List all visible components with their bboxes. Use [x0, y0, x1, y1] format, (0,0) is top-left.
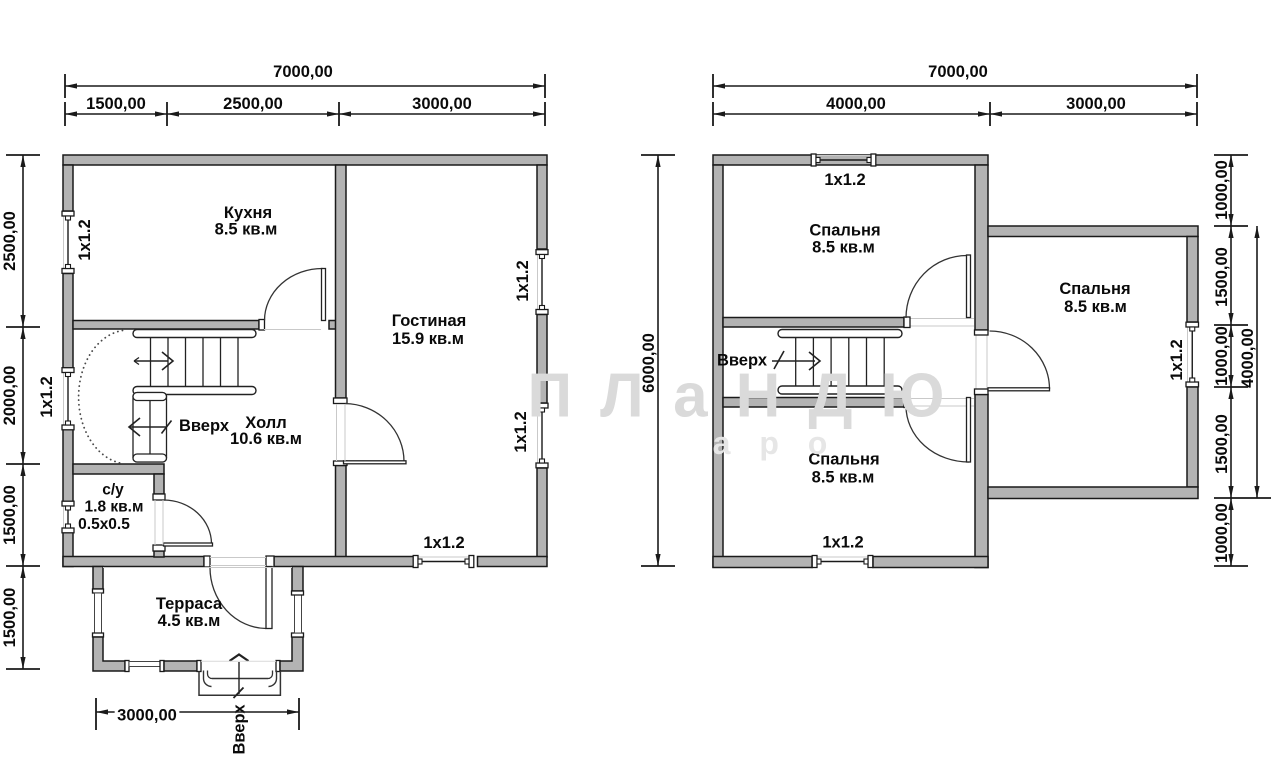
svg-text:4000,00: 4000,00	[1239, 328, 1257, 388]
svg-text:8.5 кв.м: 8.5 кв.м	[812, 239, 875, 257]
svg-text:с/у: с/у	[102, 482, 124, 499]
svg-text:3000,00: 3000,00	[412, 95, 472, 113]
svg-text:1х1.2: 1х1.2	[423, 534, 464, 552]
svg-text:2500,00: 2500,00	[1, 211, 19, 271]
svg-text:7000,00: 7000,00	[273, 63, 333, 81]
svg-text:15.9 кв.м: 15.9 кв.м	[392, 330, 464, 348]
svg-text:2500,00: 2500,00	[223, 95, 283, 113]
svg-text:1х1.2: 1х1.2	[824, 171, 865, 189]
svg-text:1х1.2: 1х1.2	[76, 219, 94, 260]
svg-text:0.5х0.5: 0.5х0.5	[78, 516, 130, 533]
svg-text:ПЛаНДЮ: ПЛаНДЮ	[528, 362, 973, 431]
svg-text:7000,00: 7000,00	[928, 63, 988, 81]
svg-text:1х1.2: 1х1.2	[514, 260, 532, 301]
svg-text:8.5 кв.м: 8.5 кв.м	[812, 469, 875, 487]
svg-text:1.8 кв.м: 1.8 кв.м	[85, 499, 144, 516]
svg-text:Кухня: Кухня	[224, 204, 272, 222]
svg-text:1000,00: 1000,00	[1213, 503, 1231, 563]
svg-text:Терраса: Терраса	[156, 595, 223, 613]
svg-text:8.5 кв.м: 8.5 кв.м	[1064, 298, 1127, 316]
svg-text:3000,00: 3000,00	[1066, 95, 1126, 113]
svg-text:1000,00: 1000,00	[1213, 326, 1231, 386]
svg-text:Спальня: Спальня	[1059, 280, 1130, 298]
svg-text:1500,00: 1500,00	[1213, 247, 1231, 307]
svg-text:1500,00: 1500,00	[86, 95, 146, 113]
svg-text:4000,00: 4000,00	[826, 95, 886, 113]
svg-text:4.5 кв.м: 4.5 кв.м	[158, 612, 221, 630]
svg-text:а р о: а р о	[713, 425, 838, 461]
svg-text:1500,00: 1500,00	[1, 485, 19, 545]
svg-text:Спальня: Спальня	[809, 222, 880, 240]
svg-text:1х1.2: 1х1.2	[38, 376, 56, 417]
svg-text:1500,00: 1500,00	[1, 588, 19, 648]
svg-text:8.5 кв.м: 8.5 кв.м	[215, 221, 278, 239]
svg-text:1000,00: 1000,00	[1213, 160, 1231, 220]
svg-text:2000,00: 2000,00	[1, 366, 19, 426]
svg-text:10.6 кв.м: 10.6 кв.м	[230, 430, 302, 448]
svg-text:3000,00: 3000,00	[117, 707, 177, 725]
svg-text:1х1.2: 1х1.2	[1168, 339, 1186, 380]
svg-text:Вверх: Вверх	[179, 417, 230, 435]
svg-text:1х1.2: 1х1.2	[822, 534, 863, 552]
svg-text:1500,00: 1500,00	[1213, 414, 1231, 474]
svg-text:Гостиная: Гостиная	[392, 312, 467, 330]
